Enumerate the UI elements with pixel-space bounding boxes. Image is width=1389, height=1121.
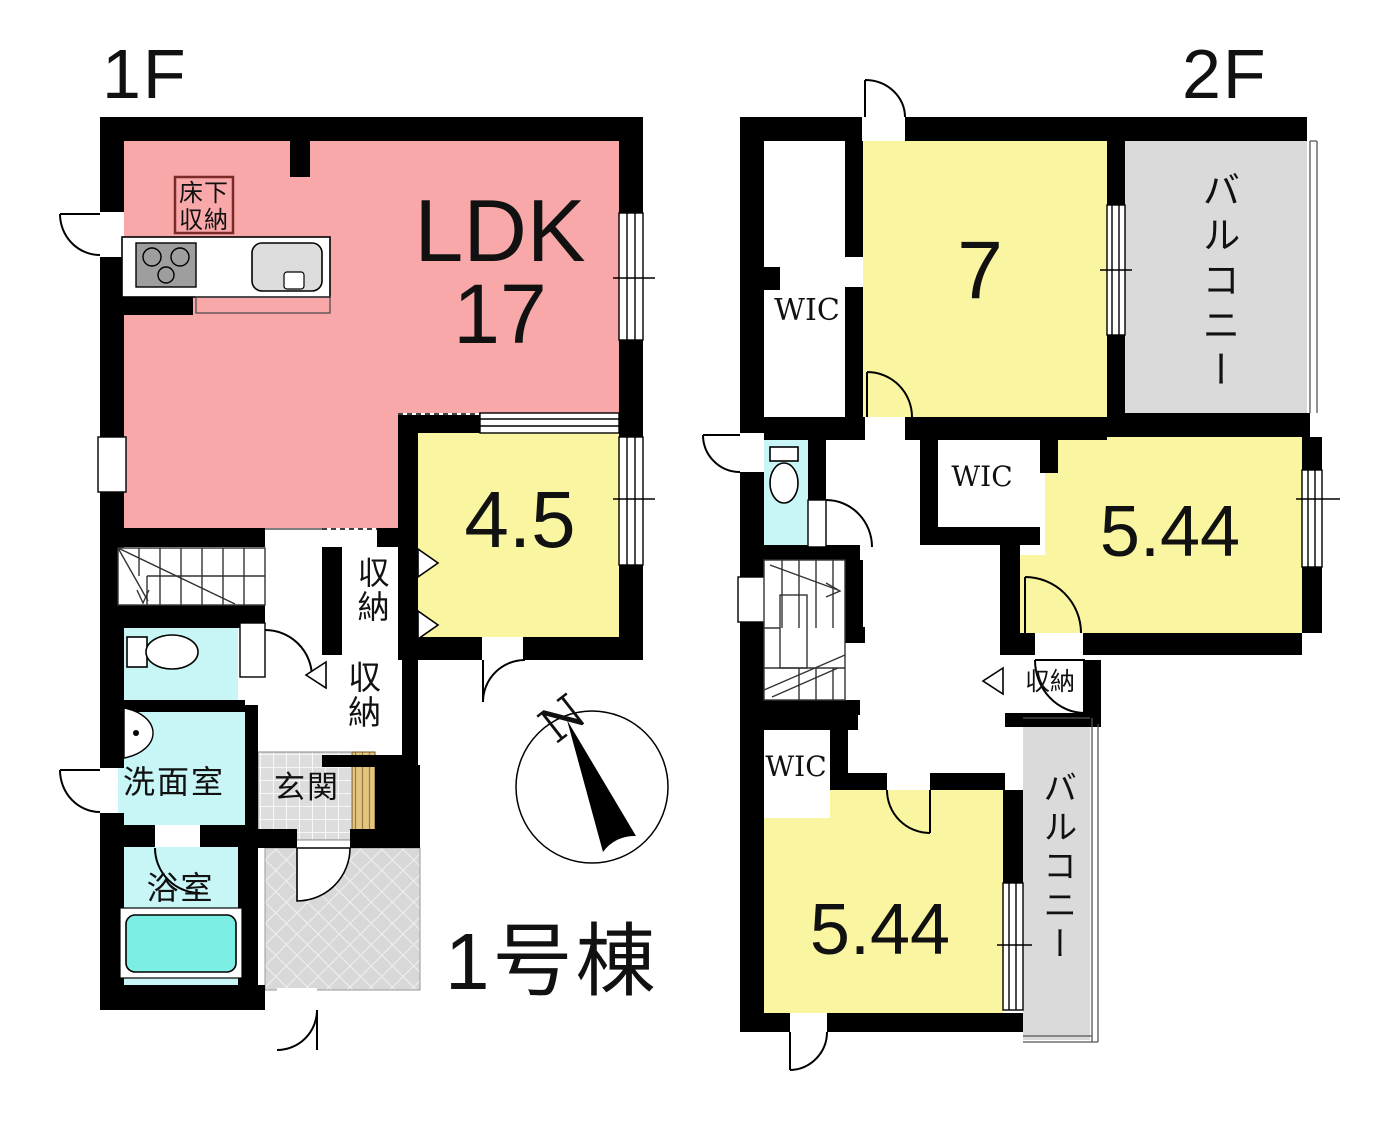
stove [136, 243, 196, 287]
floor1-label: 1F [102, 38, 188, 112]
room544a-label: 5.44 [1080, 495, 1260, 571]
room-label-ldk: LDK [400, 185, 600, 277]
window-ldk-right [619, 213, 643, 340]
floor-plan-1goto: 1F 2F LDK 17 床下 収納 4.5 収納 収納 洗面室 浴室 玄関 1… [0, 0, 1389, 1121]
compass [516, 711, 668, 863]
room544b-label: 5.44 [790, 893, 970, 969]
stairs-2f [764, 560, 845, 700]
wic2-label: WIC [943, 462, 1021, 491]
window-544a-right [1302, 470, 1322, 567]
storage1-label: 収納 [354, 556, 388, 624]
stairs-1f [118, 548, 265, 605]
underfloor-storage-label: 床下 収納 [176, 181, 232, 235]
washroom-label: 洗面室 [123, 766, 225, 800]
window-2f-left [738, 577, 766, 622]
window-45-right [619, 437, 643, 565]
room-label-45: 4.5 [430, 478, 610, 562]
window-45-top [480, 413, 619, 433]
room7-label: 7 [930, 228, 1030, 314]
balcony2-label: バルコニー [1038, 770, 1074, 965]
storage2-label: 収納 [344, 660, 379, 730]
balcony1-label: バルコニー [1196, 170, 1236, 395]
entrance-label: 玄関 [262, 772, 352, 805]
storage-2f-label: 収納 [1018, 669, 1082, 695]
window-1f-left [98, 437, 126, 492]
window-544b-right [1003, 883, 1023, 1010]
room-label-ldk-size: 17 [400, 270, 600, 358]
bathroom-label: 浴室 [128, 872, 233, 906]
bathtub [120, 908, 242, 978]
floor2-label: 2F [1182, 38, 1268, 112]
building-label: 1号棟 [445, 920, 659, 1004]
toilet-2f-fixture [770, 447, 798, 503]
toilet-1f-fixture [127, 635, 198, 669]
door-gap-room7-top [862, 117, 905, 141]
wic3-label: WIC [764, 752, 828, 781]
wic1-label: WIC [768, 295, 846, 327]
